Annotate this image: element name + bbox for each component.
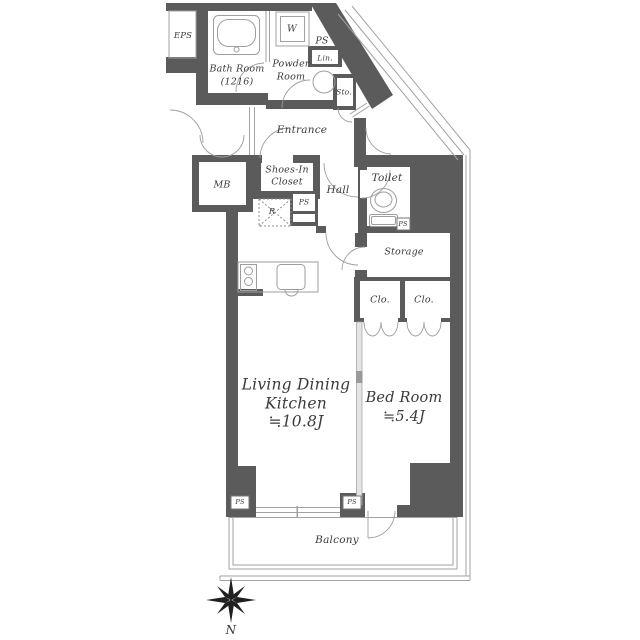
- partition-ldk-bedroom: [356, 322, 363, 505]
- sink-icon: [277, 265, 305, 297]
- label-ldk-2: Kitchen: [265, 396, 327, 412]
- entrance-partition: [250, 107, 255, 155]
- label-closet-1: Clo.: [370, 295, 390, 305]
- label-ps-top: PS: [315, 36, 328, 46]
- closet1-folding-door: [364, 322, 398, 336]
- label-ldk-area: ≒10.8J: [269, 414, 324, 430]
- storage-door-arc: [342, 247, 365, 270]
- floor-plan: EPS Bath Room (1216) W PS Lin. Sto. Powd…: [0, 0, 640, 640]
- label-bedroom-area: ≒5.4J: [383, 410, 425, 425]
- label-ldk-1: Living Dining: [242, 377, 351, 393]
- label-bath-size: (1216): [221, 77, 254, 87]
- label-entrance: Entrance: [277, 125, 327, 136]
- site-outline-bottom: [220, 576, 470, 581]
- shoes-in-closet-doorway: [262, 155, 293, 163]
- label-powder-1: Powder: [272, 59, 309, 69]
- sto-door-arc: [338, 108, 352, 122]
- label-sto: Sto.: [336, 88, 352, 96]
- walls: [166, 3, 463, 517]
- label-ps-toilet: PS: [398, 221, 407, 228]
- bathtub-icon: [214, 16, 260, 55]
- front-door-arc: [366, 128, 391, 154]
- toilet-icon: [370, 189, 398, 227]
- label-balcony: Balcony: [315, 535, 359, 546]
- closet2-folding-door: [407, 322, 441, 336]
- shoe-cabinet-double-arc: [200, 135, 244, 157]
- label-washer: W: [287, 24, 297, 34]
- washer-circle-icon: [313, 71, 335, 93]
- label-bedroom: Bed Room: [366, 391, 443, 406]
- corner-column: [410, 463, 463, 517]
- window-mullion: [297, 506, 299, 517]
- balcony-door-arc: [368, 511, 395, 538]
- site-outline-right: [466, 150, 470, 581]
- label-shoes-in-1: Shoes-In: [265, 165, 309, 175]
- ldk-door-arc: [326, 233, 358, 265]
- bath-partition: [266, 11, 270, 62]
- toilet-doorway: [360, 170, 367, 198]
- label-eps: EPS: [174, 32, 192, 41]
- label-powder-2: Room: [277, 72, 305, 82]
- label-hall: Hall: [327, 185, 350, 196]
- service-door-arc: [170, 110, 203, 143]
- label-ps-mid: PS: [347, 499, 356, 506]
- label-toilet: Toilet: [372, 173, 403, 184]
- label-ps-sic: PS: [299, 198, 310, 206]
- label-linen: Lin.: [317, 54, 332, 62]
- label-closet-2: Clo.: [414, 295, 434, 305]
- label-storage: Storage: [384, 247, 423, 257]
- label-north: N: [226, 624, 237, 636]
- label-mb: MB: [213, 180, 230, 190]
- label-shoes-in-2: Closet: [271, 177, 303, 187]
- kitchen-counter: [238, 262, 318, 296]
- sliding-door-mark: [356, 371, 363, 383]
- stove-icon: [241, 265, 257, 291]
- compass-rose-icon: [206, 577, 256, 623]
- label-refrigerator: R: [269, 208, 276, 217]
- label-bath-room: Bath Room: [209, 64, 264, 74]
- label-ps-ldk: PS: [235, 499, 244, 506]
